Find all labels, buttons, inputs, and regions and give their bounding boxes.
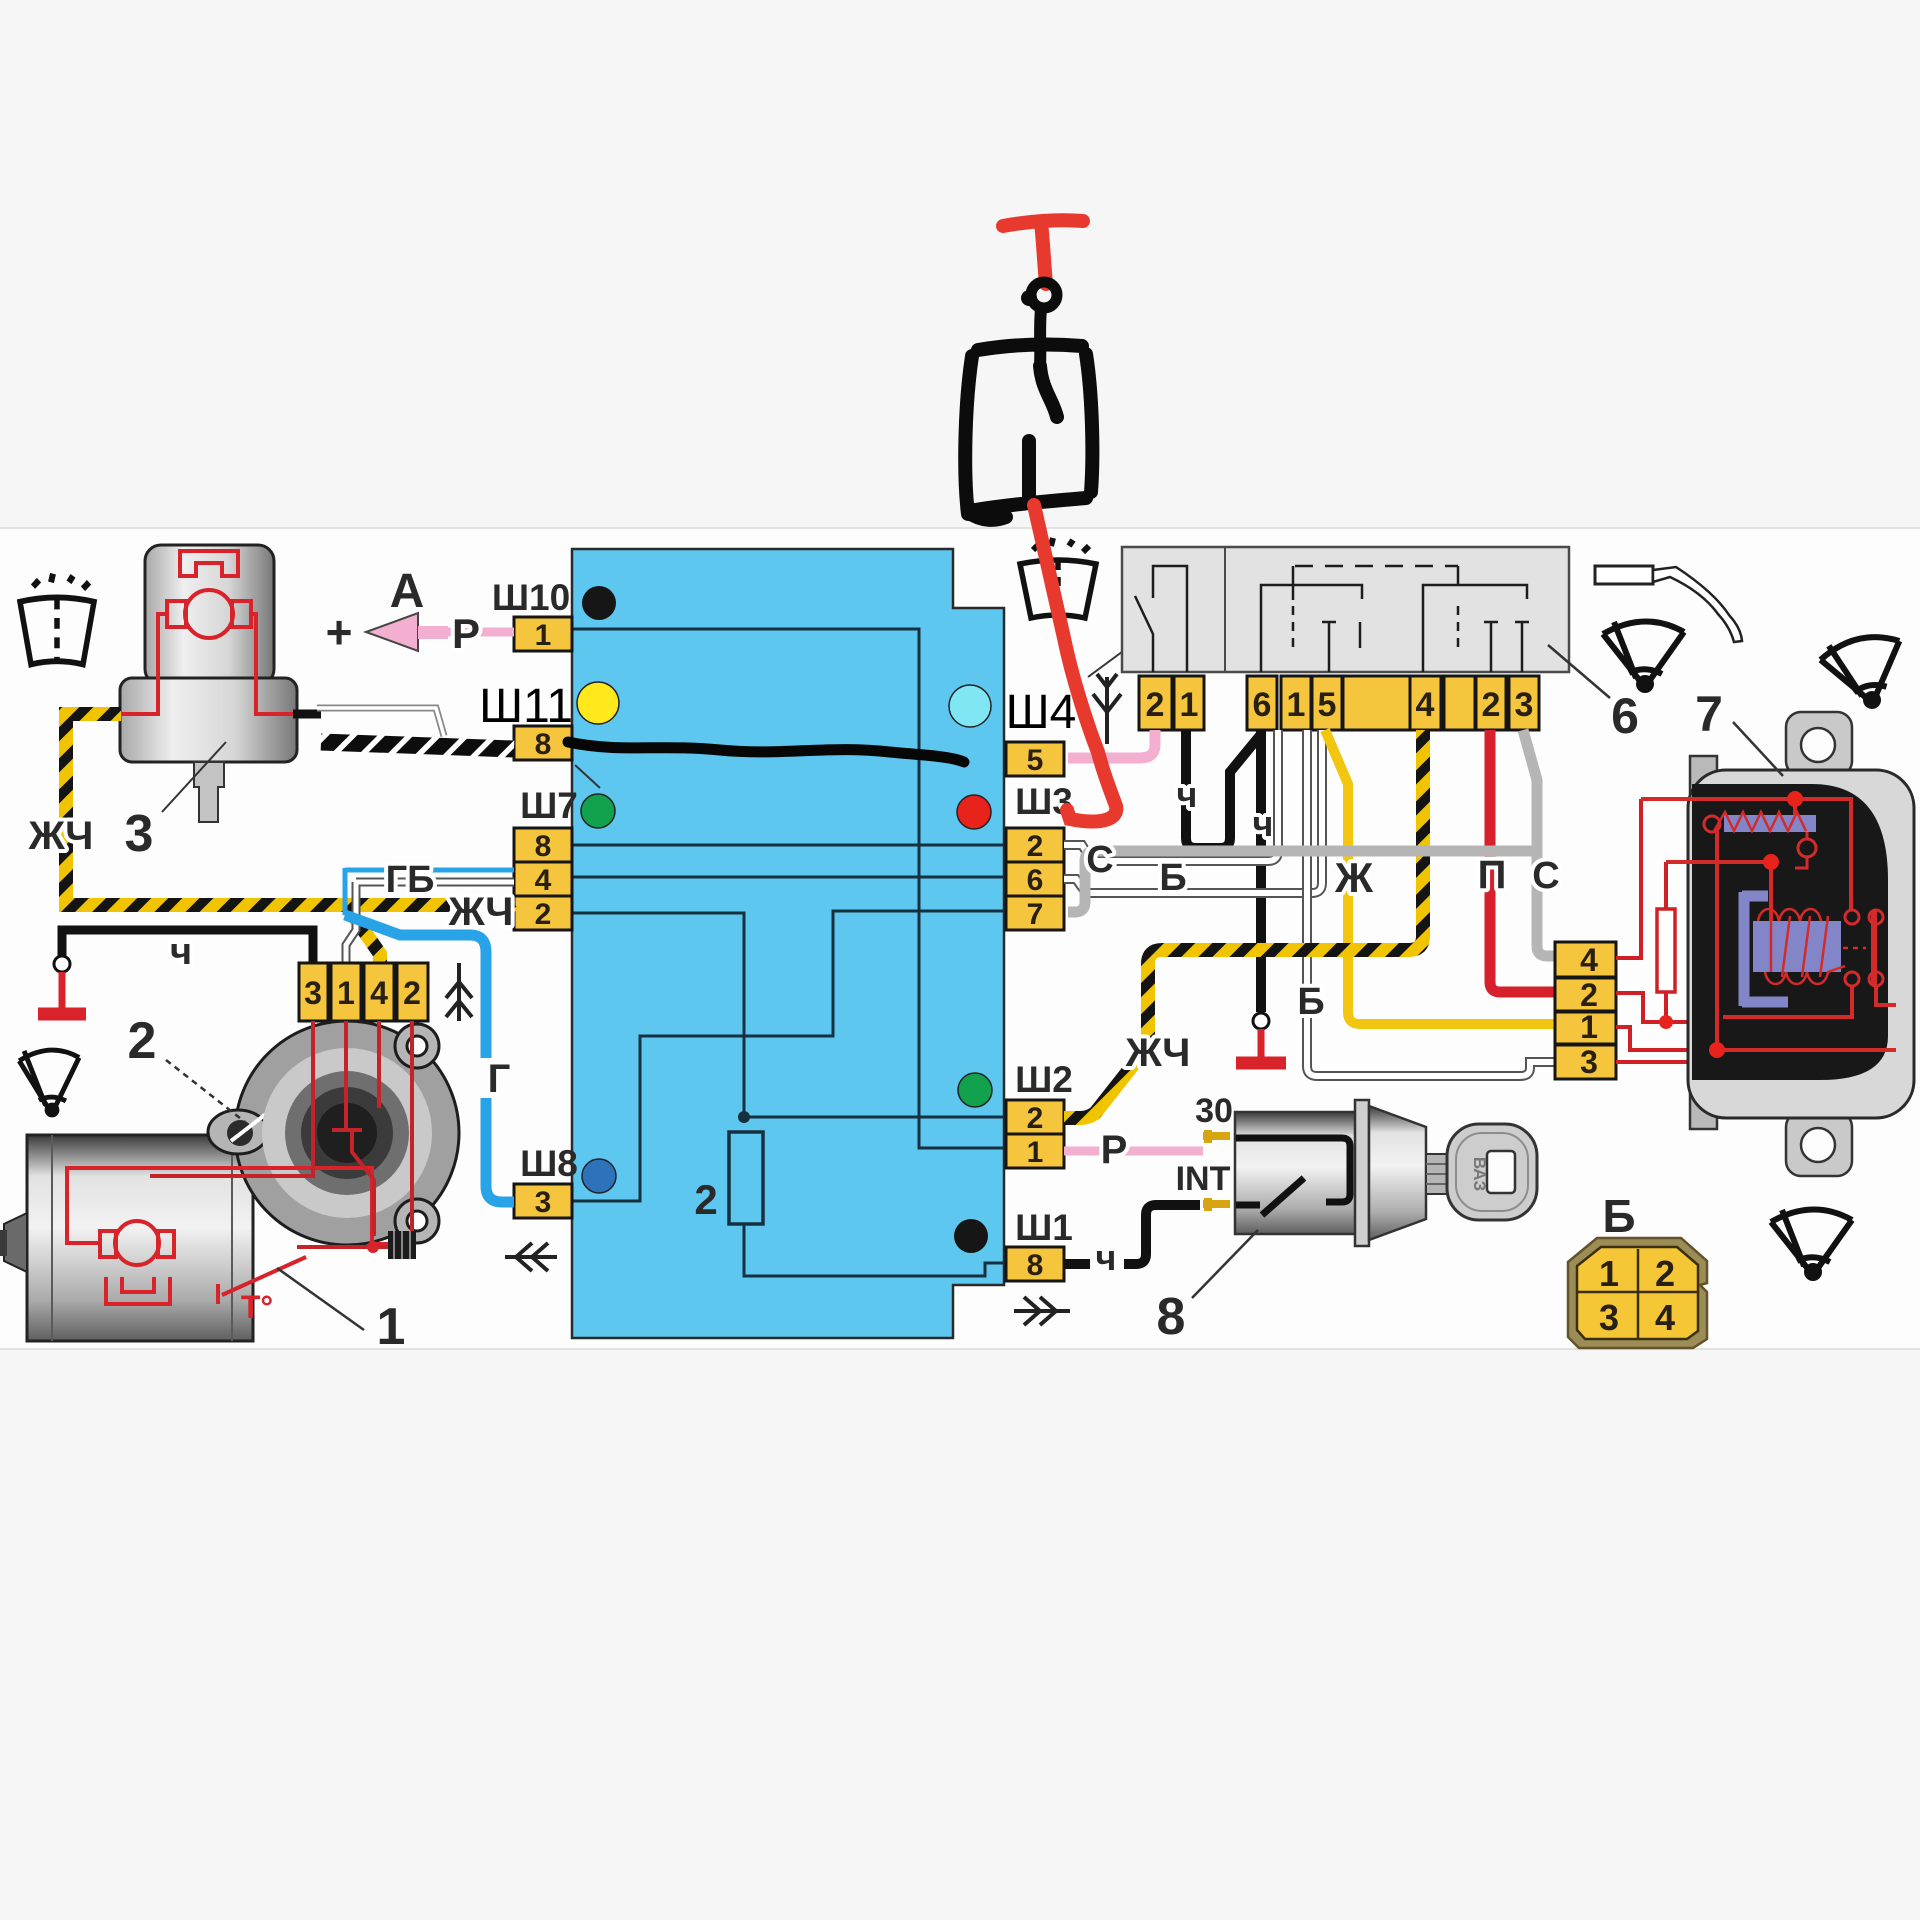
svg-text:Ш4: Ш4: [1006, 686, 1077, 739]
svg-text:1: 1: [1180, 686, 1199, 724]
svg-text:2: 2: [1580, 977, 1598, 1013]
svg-text:Ш7: Ш7: [520, 785, 578, 826]
svg-text:2: 2: [1482, 686, 1501, 724]
svg-text:Ш1: Ш1: [1015, 1207, 1073, 1248]
svg-text:1: 1: [377, 1298, 406, 1356]
svg-text:1: 1: [1599, 1253, 1619, 1294]
svg-text:8: 8: [1027, 1249, 1044, 1282]
svg-text:+: +: [326, 606, 353, 658]
svg-text:П: П: [1478, 853, 1507, 897]
svg-text:INT: INT: [1176, 1160, 1231, 1198]
svg-text:2: 2: [128, 1012, 157, 1070]
svg-text:8: 8: [535, 830, 552, 863]
svg-text:7: 7: [1695, 686, 1723, 742]
svg-text:Ш2: Ш2: [1015, 1059, 1073, 1100]
svg-text:1: 1: [535, 619, 552, 652]
svg-text:ВАЗ: ВАЗ: [1470, 1157, 1489, 1191]
svg-text:ЖЧ: ЖЧ: [1125, 1031, 1191, 1075]
svg-text:4: 4: [1416, 686, 1435, 724]
svg-text:Ш10: Ш10: [492, 577, 570, 618]
svg-text:1: 1: [337, 975, 355, 1011]
svg-text:Б: Б: [1602, 1190, 1635, 1242]
svg-text:ЖЧ: ЖЧ: [448, 890, 514, 934]
svg-text:5: 5: [1027, 744, 1044, 777]
svg-text:2: 2: [403, 975, 421, 1011]
svg-text:3: 3: [1599, 1297, 1619, 1338]
svg-text:2: 2: [1146, 686, 1165, 724]
svg-text:6: 6: [1253, 686, 1272, 724]
svg-text:4: 4: [535, 864, 552, 897]
svg-text:Ш11: Ш11: [479, 680, 573, 733]
svg-text:1: 1: [1287, 686, 1306, 724]
svg-text:P: P: [452, 610, 480, 657]
svg-text:1: 1: [1027, 1136, 1044, 1169]
svg-text:3: 3: [125, 805, 154, 863]
svg-text:ГБ: ГБ: [386, 859, 435, 901]
svg-text:4: 4: [1580, 942, 1598, 978]
svg-text:2: 2: [1655, 1253, 1675, 1294]
svg-text:2: 2: [1027, 1102, 1044, 1135]
svg-text:Г: Г: [488, 1057, 511, 1101]
svg-text:4: 4: [1655, 1297, 1675, 1338]
svg-text:С: С: [1532, 855, 1559, 897]
svg-text:ЖЧ: ЖЧ: [28, 814, 94, 858]
svg-text:Ж: Ж: [1334, 854, 1374, 901]
svg-text:3: 3: [1580, 1044, 1598, 1080]
svg-text:ч: ч: [1096, 1237, 1117, 1278]
svg-text:3: 3: [1515, 686, 1534, 724]
svg-text:ч: ч: [1253, 803, 1274, 844]
svg-text:ч: ч: [1177, 774, 1198, 815]
svg-text:Б: Б: [1297, 981, 1324, 1023]
svg-text:6: 6: [1027, 864, 1044, 897]
svg-text:3: 3: [535, 1186, 552, 1219]
svg-text:7: 7: [1027, 898, 1044, 931]
svg-text:2: 2: [694, 1176, 717, 1223]
svg-text:С: С: [1086, 839, 1113, 881]
svg-text:8: 8: [1157, 1288, 1186, 1346]
svg-text:Т°: Т°: [241, 1289, 273, 1325]
svg-text:3: 3: [304, 975, 322, 1011]
svg-text:5: 5: [1318, 686, 1337, 724]
svg-text:2: 2: [535, 898, 552, 931]
svg-text:4: 4: [370, 975, 388, 1011]
svg-text:2: 2: [1027, 830, 1044, 863]
svg-text:Ш8: Ш8: [520, 1143, 578, 1184]
svg-text:P: P: [1101, 1128, 1128, 1172]
svg-text:Б: Б: [1159, 857, 1186, 899]
svg-text:A: A: [390, 565, 425, 618]
svg-text:ч: ч: [170, 931, 192, 973]
svg-text:30: 30: [1195, 1092, 1233, 1130]
svg-text:1: 1: [1580, 1009, 1598, 1045]
svg-text:6: 6: [1611, 688, 1639, 744]
